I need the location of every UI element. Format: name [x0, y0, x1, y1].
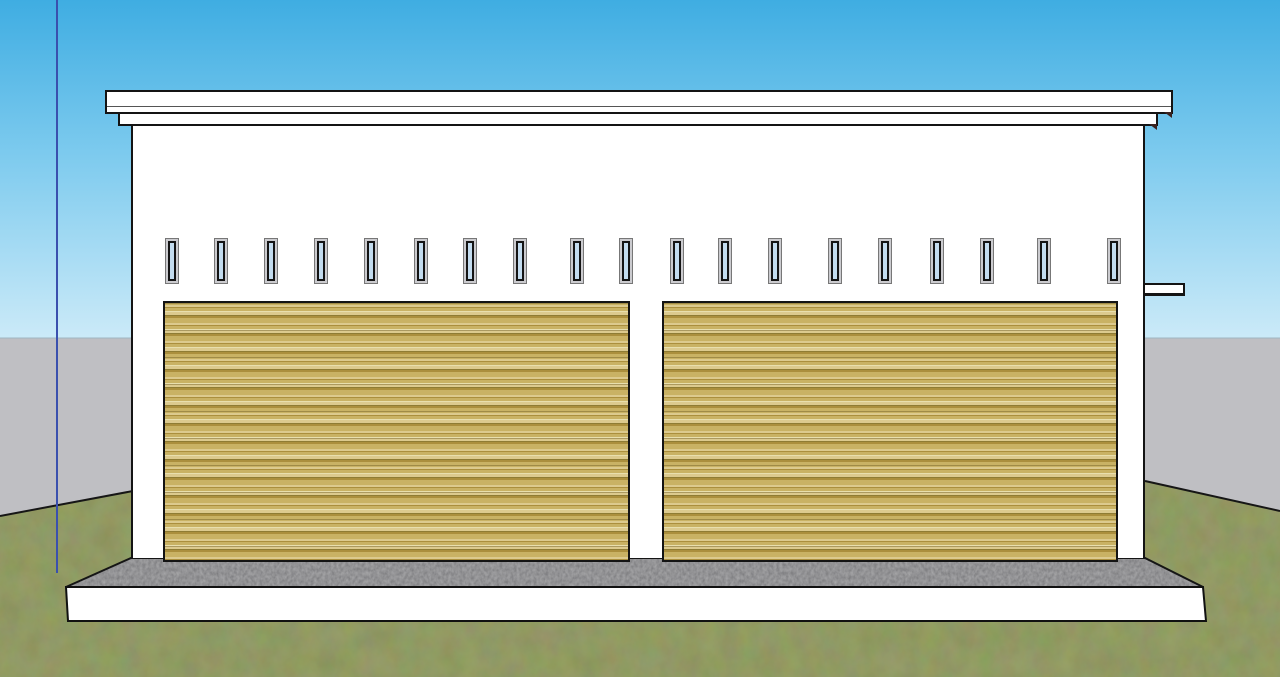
window-glass	[267, 241, 275, 281]
window-glass	[622, 241, 630, 281]
window-glass	[466, 241, 474, 281]
clerestory-window	[264, 238, 278, 284]
clerestory-window	[314, 238, 328, 284]
clerestory-window	[364, 238, 378, 284]
clerestory-window	[214, 238, 228, 284]
clerestory-window	[828, 238, 842, 284]
window-glass	[983, 241, 991, 281]
curb-slab	[66, 587, 1206, 621]
concrete-apron	[66, 558, 1203, 587]
window-glass	[771, 241, 779, 281]
window-glass	[573, 241, 581, 281]
clerestory-window	[930, 238, 944, 284]
side-ledge	[1143, 283, 1185, 296]
clerestory-window	[878, 238, 892, 284]
clerestory-window	[165, 238, 179, 284]
clerestory-window	[463, 238, 477, 284]
clerestory-window	[718, 238, 732, 284]
window-glass	[168, 241, 176, 281]
window-glass	[673, 241, 681, 281]
clerestory-window	[570, 238, 584, 284]
clerestory-window	[1107, 238, 1121, 284]
window-glass	[721, 241, 729, 281]
3d-model-viewport[interactable]	[0, 0, 1280, 677]
cornice-lower-band	[118, 112, 1158, 126]
cornice-top-slab	[105, 90, 1173, 114]
clerestory-window	[513, 238, 527, 284]
window-glass	[1040, 241, 1048, 281]
clerestory-window	[1037, 238, 1051, 284]
window-glass	[217, 241, 225, 281]
window-glass	[1110, 241, 1118, 281]
cornice-groove-line	[107, 106, 1171, 107]
clerestory-window	[768, 238, 782, 284]
window-glass	[831, 241, 839, 281]
clerestory-window	[619, 238, 633, 284]
window-glass	[367, 241, 375, 281]
window-glass	[881, 241, 889, 281]
window-glass	[516, 241, 524, 281]
blue-axis-line	[56, 0, 58, 573]
clerestory-window	[670, 238, 684, 284]
window-glass	[933, 241, 941, 281]
roller-door-left	[163, 301, 630, 562]
window-glass	[417, 241, 425, 281]
window-glass	[317, 241, 325, 281]
clerestory-window	[414, 238, 428, 284]
clerestory-window	[980, 238, 994, 284]
roller-door-right	[662, 301, 1118, 562]
